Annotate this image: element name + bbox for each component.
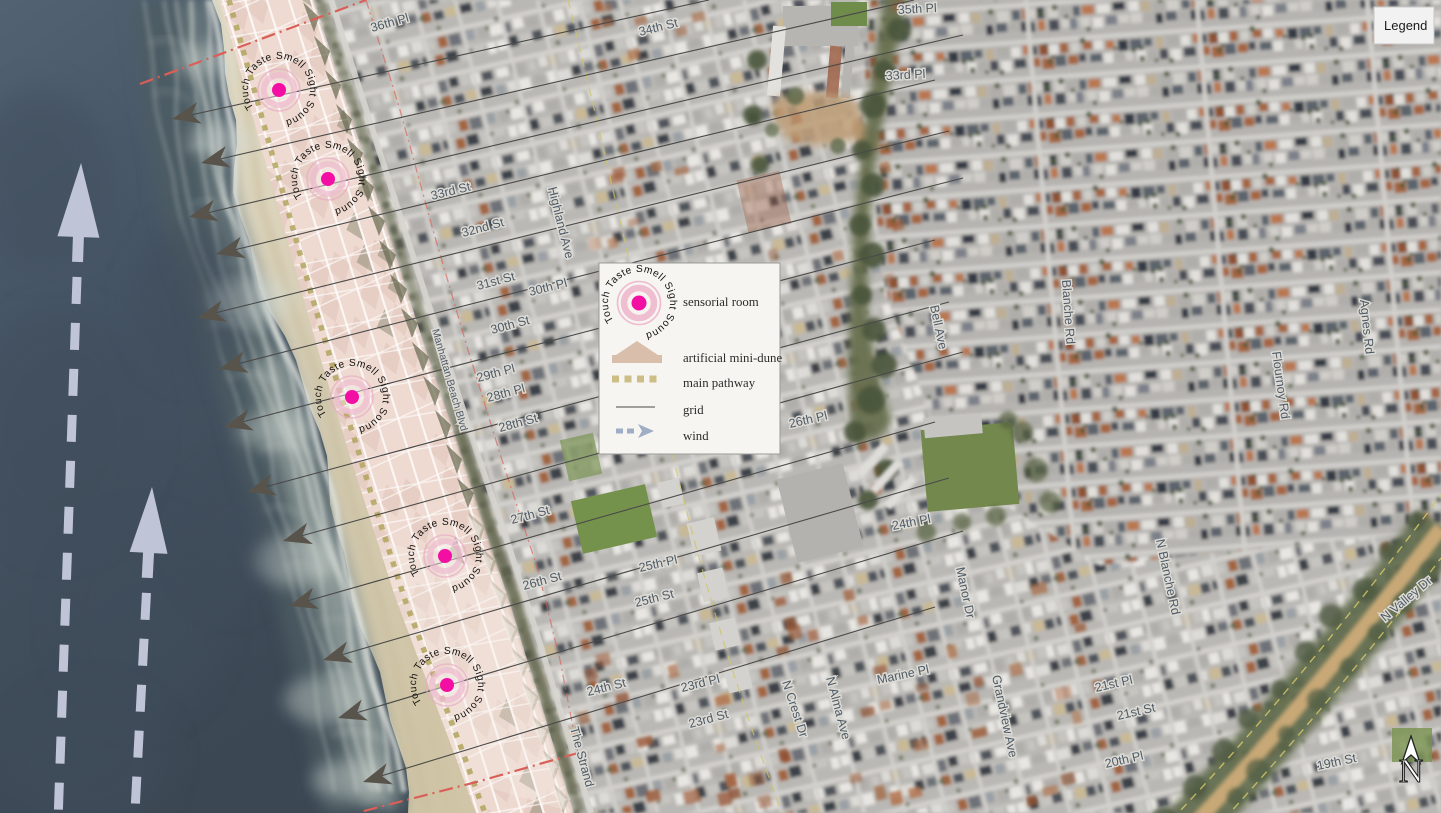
svg-text:grid: grid (683, 403, 704, 417)
svg-text:wind: wind (683, 429, 709, 443)
svg-text:main pathway: main pathway (683, 376, 756, 390)
svg-text:Legend: Legend (1384, 18, 1427, 33)
svg-text:sensorial room: sensorial room (683, 295, 759, 309)
svg-text:N: N (1399, 753, 1424, 790)
svg-text:artificial mini-dune: artificial mini-dune (683, 351, 782, 365)
svg-text:35th Pl: 35th Pl (897, 1, 937, 17)
svg-text:33rd Pl: 33rd Pl (885, 67, 925, 83)
